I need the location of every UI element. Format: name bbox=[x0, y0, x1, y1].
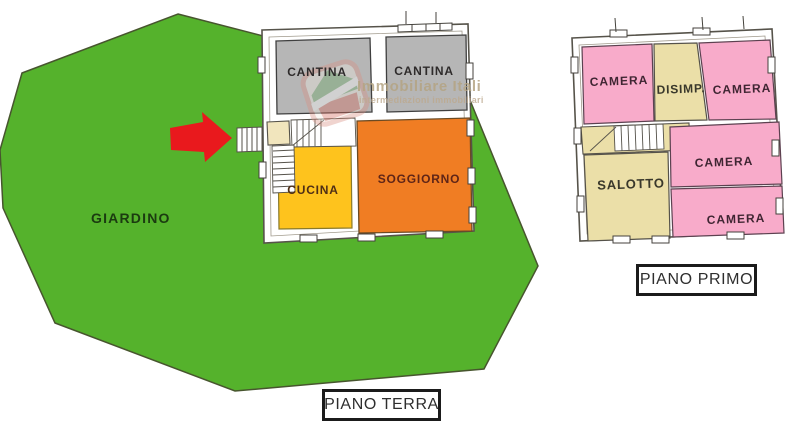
floor-plan-image: GIARDINO CANTINA CANTINA CUCINA SOGGIORN… bbox=[0, 0, 800, 432]
room-label-salotto: SALOTTO bbox=[597, 175, 665, 192]
gf-entry-hall bbox=[267, 121, 290, 145]
first-floor-building bbox=[571, 16, 784, 243]
room-label-cantina-2: CANTINA bbox=[394, 64, 454, 78]
room-label-disimpegno: DISIMP. bbox=[656, 81, 705, 97]
watermark-brand-text: Immobiliare Itali bbox=[357, 78, 481, 95]
garden-label: GIARDINO bbox=[91, 210, 171, 226]
room-label-camera-e: CAMERA bbox=[694, 154, 753, 170]
first-floor-caption: PIANO PRIMO bbox=[636, 264, 757, 296]
ground-floor-building bbox=[237, 11, 476, 243]
gf-entrance-steps bbox=[237, 127, 262, 152]
room-label-cucina: CUCINA bbox=[287, 183, 338, 197]
room-label-soggiorno: SOGGIORNO bbox=[378, 172, 461, 186]
room-label-camera-ne: CAMERA bbox=[712, 81, 771, 97]
room-label-camera-se: CAMERA bbox=[706, 211, 765, 227]
watermark-tagline-text: intermediazioni immobiliari bbox=[359, 95, 484, 105]
ground-floor-caption: PIANO TERRA bbox=[322, 389, 441, 421]
room-camera-ne bbox=[699, 40, 776, 120]
room-salotto bbox=[584, 152, 670, 241]
room-label-camera-nw: CAMERA bbox=[589, 73, 648, 89]
room-label-cantina-1: CANTINA bbox=[287, 65, 347, 79]
